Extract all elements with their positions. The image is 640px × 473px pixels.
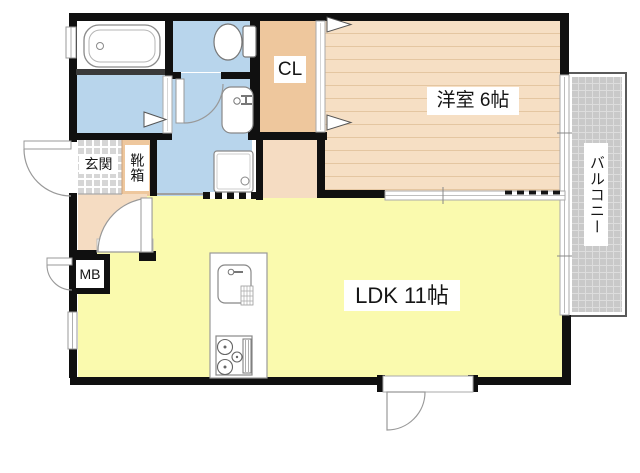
wall-toilet-closet <box>250 13 260 134</box>
ldk-label: LDK 11帖 <box>344 280 460 311</box>
wall-bottom <box>70 377 571 385</box>
room-laundry-space <box>157 136 252 196</box>
wall-top <box>70 13 568 21</box>
wall-bottomdoor-cap-right <box>468 375 478 392</box>
floorplan-canvas: MB <box>0 0 640 473</box>
wall-shoebox-right <box>150 137 157 196</box>
wall-right-lower <box>562 315 571 383</box>
wall-toilet-bottom-left <box>165 72 181 79</box>
room-toilet <box>173 21 252 72</box>
wall-toilet-bottom-right <box>221 72 252 79</box>
wall-partition-western-ldk <box>317 190 385 198</box>
room-washroom <box>76 73 165 133</box>
room-bathroom <box>76 21 165 71</box>
kitchen-boundary-dashed-wall <box>203 192 258 199</box>
entrance-door-opening <box>67 142 78 193</box>
balcony-label: バルコニー <box>584 143 608 246</box>
wall-right-upper <box>560 13 569 75</box>
wall-bottomdoor-cap-left <box>377 375 385 392</box>
western-room-label: 洋室 6帖 <box>427 87 519 115</box>
entrance-door <box>24 141 71 196</box>
room-alcove <box>263 140 317 198</box>
wall-closet-western-lower <box>317 133 325 198</box>
shoe-cabinet-label: 靴箱 <box>125 145 149 191</box>
wall-bath-washroom <box>76 69 165 75</box>
room-hallway <box>78 194 147 252</box>
entrance-label: 玄関 <box>79 154 118 174</box>
wall-alcove-left <box>256 138 263 200</box>
room-ldk <box>78 196 562 377</box>
meter-box-label: MB <box>76 260 104 288</box>
laundry-ldk-divider-line <box>157 193 203 195</box>
wall-hallway-door-stub <box>139 251 156 261</box>
wall-left <box>69 13 77 378</box>
wall-kitchen-stub <box>252 326 267 382</box>
closet-label: CL <box>274 56 306 83</box>
room-corridor-sanitary <box>164 73 252 136</box>
wall-bath-toilet <box>165 13 173 73</box>
